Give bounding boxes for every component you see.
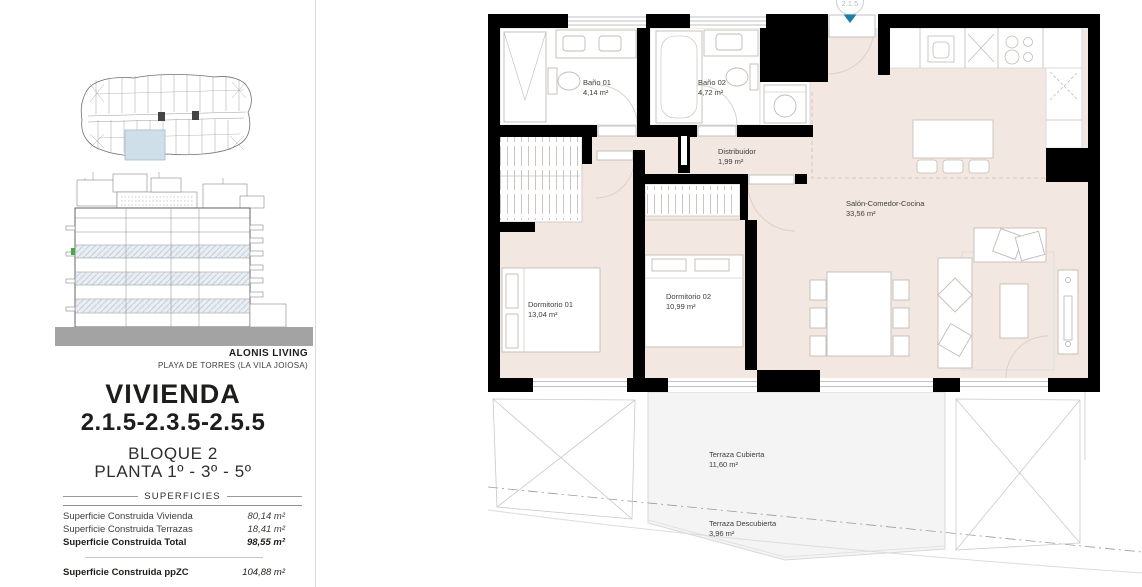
plan-sheet: ALONIS LIVING PLAYA DE TORRES (LA VILA J… bbox=[0, 0, 1142, 587]
block-label: BLOQUE 2 bbox=[40, 444, 306, 464]
room-label: Baño 02 bbox=[698, 78, 726, 87]
room-area: 1,99 m² bbox=[718, 157, 744, 166]
room-area: 10,99 m² bbox=[666, 302, 696, 311]
kitchen-counter-side bbox=[1046, 68, 1082, 148]
tv-unit-icon bbox=[1058, 270, 1078, 354]
rooftop-elements bbox=[77, 172, 264, 208]
bathtub-icon bbox=[656, 31, 702, 123]
stool-icon bbox=[943, 160, 963, 173]
table-row: Superficie Construida Vivienda 80,14 m² bbox=[63, 511, 285, 524]
site-key-plan bbox=[72, 68, 257, 163]
kitchen-island-icon bbox=[913, 120, 993, 158]
surfaces-heading: SUPERFICIES bbox=[63, 491, 302, 502]
sheet-divider bbox=[315, 0, 316, 587]
highlighted-unit bbox=[125, 130, 165, 160]
room-label: Terraza Descubierta bbox=[709, 519, 777, 528]
table-divider-short bbox=[85, 557, 263, 558]
unit-numbers: 2.1.5-2.3.5-2.5.5 bbox=[40, 409, 306, 437]
toilet-icon bbox=[548, 68, 557, 94]
neighbor-terrace-right bbox=[956, 392, 1085, 550]
room-label: Terraza Cubierta bbox=[709, 450, 765, 459]
toilet-icon bbox=[750, 64, 758, 90]
brand-block: ALONIS LIVING PLAYA DE TORRES (LA VILA J… bbox=[40, 348, 308, 372]
room-area: 11,60 m² bbox=[709, 460, 739, 469]
neighbor-terrace-left bbox=[493, 399, 635, 519]
core-block bbox=[158, 112, 165, 121]
core-block bbox=[192, 111, 199, 120]
brand-name: ALONIS LIVING bbox=[40, 348, 308, 360]
stool-icon bbox=[969, 160, 989, 173]
ground-bar bbox=[55, 327, 313, 346]
unit-badge-label: 2.1.5 bbox=[842, 0, 859, 8]
floors-label: PLANTA 1º - 3º - 5º bbox=[40, 462, 306, 482]
heading-rule-left bbox=[63, 496, 138, 497]
room-label: Dormitorio 01 bbox=[528, 300, 573, 309]
terrace bbox=[488, 392, 1142, 573]
coffee-table-icon bbox=[1000, 284, 1028, 338]
dining-table-icon bbox=[810, 272, 909, 356]
room-label: Baño 01 bbox=[583, 78, 611, 87]
table-row-ppzc: Superficie Construida ppZC 104,88 m² bbox=[63, 567, 285, 580]
room-label: Dormitorio 02 bbox=[666, 292, 711, 301]
room-label: Distribuidor bbox=[718, 147, 756, 156]
building-elevation bbox=[55, 172, 313, 348]
kitchen-counter bbox=[888, 28, 1082, 68]
room-area: 3,96 m² bbox=[709, 529, 735, 538]
stool-icon bbox=[917, 160, 937, 173]
table-row: Superficie Construida Terrazas 18,41 m² bbox=[63, 524, 285, 537]
table-divider bbox=[63, 505, 302, 506]
pocket-door bbox=[681, 136, 687, 165]
level-marker-green bbox=[71, 248, 75, 255]
room-area: 4,14 m² bbox=[583, 88, 609, 97]
shower-icon bbox=[504, 32, 546, 122]
bed-icon bbox=[645, 255, 743, 347]
room-area: 4,72 m² bbox=[698, 88, 724, 97]
room-area: 33,56 m² bbox=[846, 209, 876, 218]
table-row-total: Superficie Construida Total 98,55 m² bbox=[63, 537, 285, 550]
floor-plan: Baño 01 4,14 m² Baño 02 4,72 m² Distribu… bbox=[470, 0, 1142, 587]
highlighted-floors bbox=[76, 246, 249, 313]
page-title: VIVIENDA bbox=[40, 379, 306, 410]
room-label: Salón-Comedor-Cocina bbox=[846, 199, 925, 208]
heading-rule-right bbox=[227, 496, 302, 497]
brand-location: PLAYA DE TORRES (LA VILA JOIOSA) bbox=[40, 360, 308, 372]
room-area: 13,04 m² bbox=[528, 310, 558, 319]
